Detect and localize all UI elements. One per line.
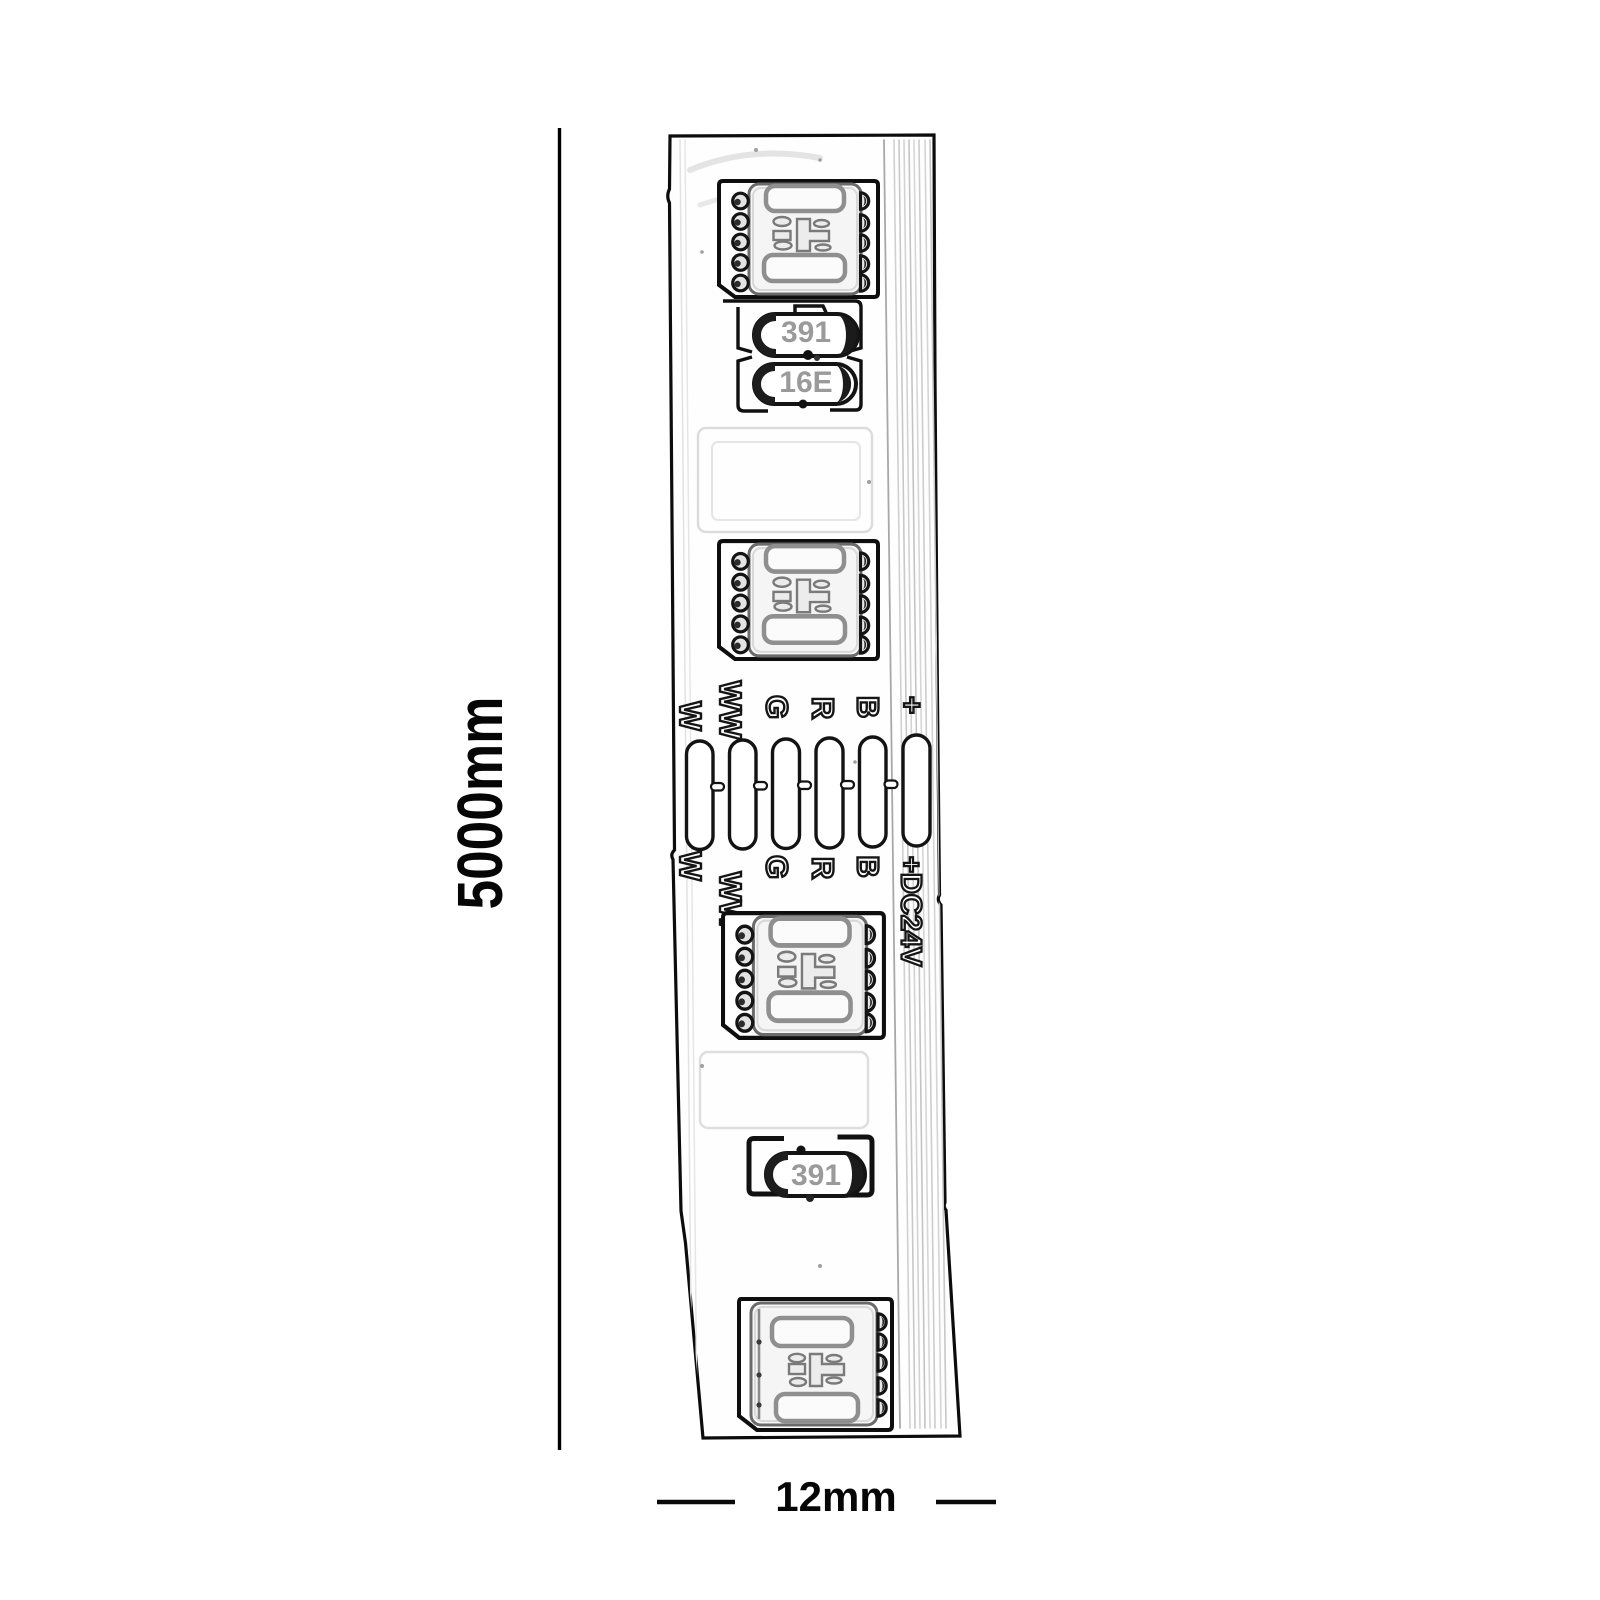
svg-text:W: W bbox=[673, 701, 708, 731]
svg-text:391: 391 bbox=[791, 1159, 841, 1192]
svg-text:B: B bbox=[851, 855, 886, 877]
svg-text:G: G bbox=[760, 855, 795, 879]
svg-text:R: R bbox=[806, 857, 841, 879]
svg-text:+DC24V: +DC24V bbox=[895, 856, 927, 967]
svg-text:G: G bbox=[760, 695, 795, 719]
svg-text:+: + bbox=[895, 696, 930, 714]
svg-text:391: 391 bbox=[781, 316, 831, 349]
svg-text:W: W bbox=[673, 851, 708, 881]
svg-text:B: B bbox=[851, 696, 886, 718]
svg-text:WW: WW bbox=[713, 681, 748, 740]
svg-text:R: R bbox=[806, 697, 841, 719]
svg-text:5000mm: 5000mm bbox=[444, 697, 516, 910]
svg-text:12mm: 12mm bbox=[775, 1473, 896, 1520]
svg-text:16E: 16E bbox=[779, 366, 832, 399]
